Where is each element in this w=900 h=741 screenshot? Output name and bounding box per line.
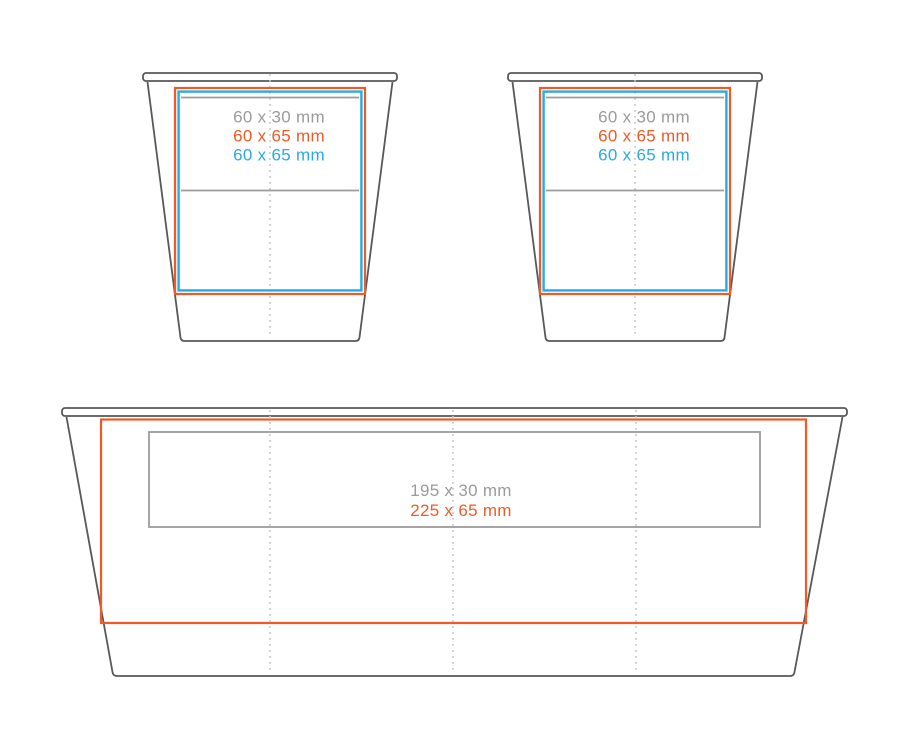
tray-print-area-orange <box>101 420 806 624</box>
tray-large: 195 x 30 mm 225 x 65 mm <box>62 408 847 676</box>
diagram-canvas: 60 x 30 mm 60 x 65 mm 60 x 65 mm 60 x 30… <box>0 0 900 741</box>
cup1-label-gray: 60 x 30 mm <box>233 108 325 127</box>
cup2-label-blue: 60 x 65 mm <box>598 146 690 165</box>
cup1-label-blue: 60 x 65 mm <box>233 146 325 165</box>
tray-label-gray: 195 x 30 mm <box>410 481 512 500</box>
tray-rim <box>62 408 847 416</box>
tray-body-outline <box>67 417 843 676</box>
cup2-label-orange: 60 x 65 mm <box>598 127 690 146</box>
cup2-label-gray: 60 x 30 mm <box>598 108 690 127</box>
cup1-label-orange: 60 x 65 mm <box>233 127 325 146</box>
cup-small-2: 60 x 30 mm 60 x 65 mm 60 x 65 mm <box>508 73 762 341</box>
cup-small-1: 60 x 30 mm 60 x 65 mm 60 x 65 mm <box>143 73 397 341</box>
print-area-diagram: 60 x 30 mm 60 x 65 mm 60 x 65 mm 60 x 30… <box>0 0 900 741</box>
tray-label-orange: 225 x 65 mm <box>410 501 512 520</box>
